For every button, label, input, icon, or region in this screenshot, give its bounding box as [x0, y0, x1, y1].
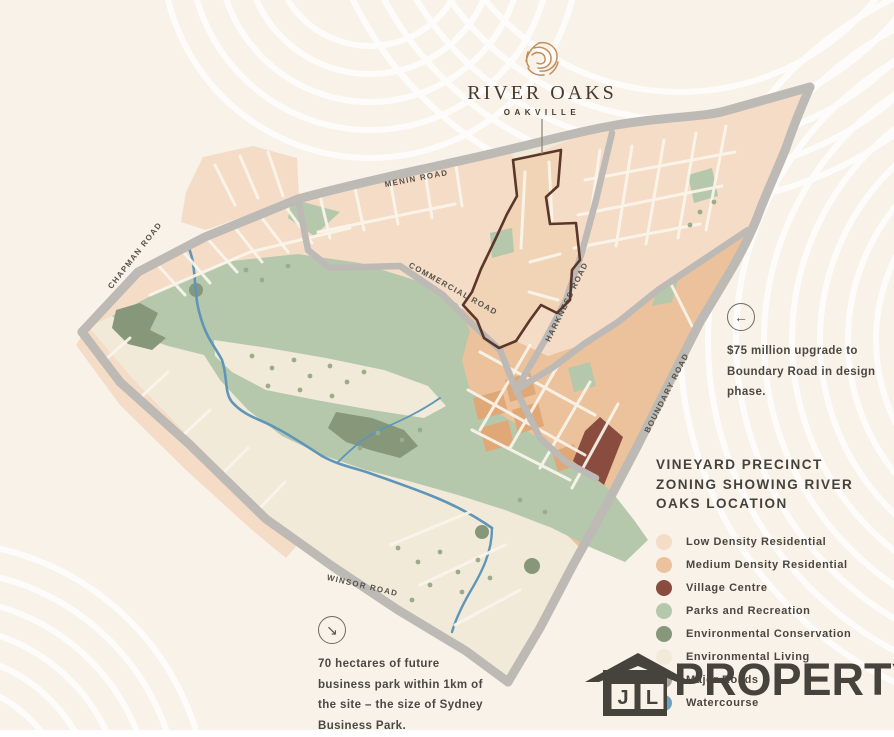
legend-item-label: Village Centre	[686, 582, 768, 594]
legend-item: Parks and Recreation	[656, 603, 886, 619]
watermark-word: PROPERTY	[674, 654, 894, 706]
legend-item-label: Low Density Residential	[686, 536, 826, 548]
legend-item: Medium Density Residential	[656, 557, 886, 573]
logo-swirl-icon	[522, 40, 562, 78]
brand-locality: OAKVILLE	[412, 108, 672, 117]
arrow-left-glyph: ←	[734, 309, 748, 325]
legend-item-label: Parks and Recreation	[686, 605, 811, 617]
legend-swatch	[656, 557, 672, 573]
arrow-left-icon: ←	[727, 303, 755, 331]
legend-item: Village Centre	[656, 580, 886, 596]
legend-swatch	[656, 626, 672, 642]
callout-boundary-upgrade: ← $75 million upgrade to Boundary Road i…	[727, 303, 879, 403]
brand-logo: RIVER OAKS OAKVILLE	[412, 40, 672, 117]
watermark-initial-right: L	[646, 687, 658, 709]
arrow-down-right-icon: ↘	[318, 616, 346, 644]
poster-canvas: MENIN ROAD CHAPMAN ROAD COMMERCIAL ROAD …	[0, 0, 894, 730]
legend-item-label: Environmental Conservation	[686, 628, 851, 640]
callout-business-park-text: 70 hectares of future business park with…	[318, 654, 493, 737]
legend-swatch	[656, 534, 672, 550]
legend-swatch	[656, 580, 672, 596]
callout-business-park: ↘ 70 hectares of future business park wi…	[318, 616, 493, 737]
legend-title: VINEYARD PRECINCT ZONING SHOWING RIVER O…	[656, 455, 874, 514]
legend-item-label: Medium Density Residential	[686, 559, 848, 571]
brand-name: RIVER OAKS	[412, 82, 672, 105]
legend-item: Environmental Conservation	[656, 626, 886, 642]
callout-boundary-upgrade-text: $75 million upgrade to Boundary Road in …	[727, 341, 879, 403]
arrow-down-right-glyph: ↘	[326, 622, 338, 639]
legend-item: Low Density Residential	[656, 534, 886, 550]
legend-swatch	[656, 603, 672, 619]
watermark-initial-left: J	[617, 687, 628, 709]
watermark-logo: J L PROPERTY	[583, 646, 894, 720]
